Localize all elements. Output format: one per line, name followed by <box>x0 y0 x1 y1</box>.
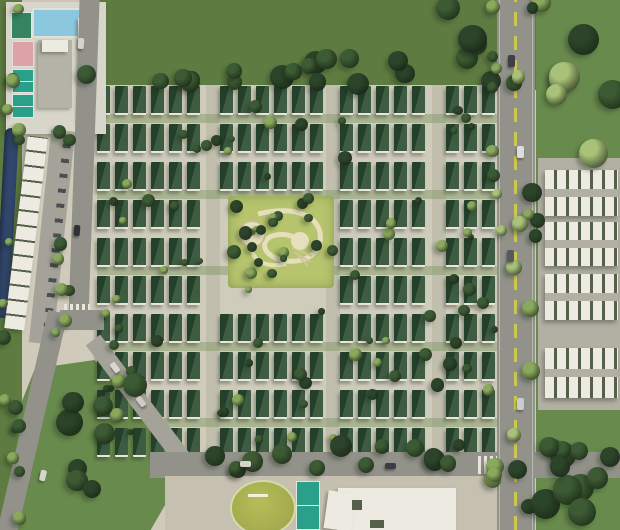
house <box>133 314 146 343</box>
house <box>358 276 371 305</box>
house <box>115 238 128 267</box>
tree <box>347 73 369 95</box>
house <box>358 162 371 191</box>
tree <box>568 24 599 55</box>
house <box>151 162 164 191</box>
car <box>517 146 524 158</box>
house <box>464 390 477 419</box>
house <box>187 314 200 343</box>
tree <box>600 447 620 467</box>
house <box>187 390 200 419</box>
tree <box>280 255 286 261</box>
row-house-block <box>545 170 618 216</box>
house <box>292 86 305 115</box>
sports-court-pink <box>12 41 34 67</box>
car <box>240 461 251 467</box>
tree <box>294 368 307 381</box>
house <box>292 162 305 191</box>
row-house-block <box>545 348 618 398</box>
house <box>340 314 353 343</box>
crosswalk <box>64 304 90 310</box>
house <box>446 238 459 267</box>
tree <box>179 130 188 139</box>
house <box>310 352 323 381</box>
house <box>464 86 477 115</box>
tree <box>205 446 224 465</box>
tree <box>491 63 502 74</box>
car <box>517 398 524 410</box>
tree <box>193 145 201 153</box>
tree <box>568 498 596 526</box>
house <box>115 86 128 115</box>
house <box>412 200 425 229</box>
house <box>151 352 164 381</box>
tree <box>93 396 113 416</box>
house <box>412 124 425 153</box>
tree <box>102 309 111 318</box>
tree <box>330 435 352 457</box>
masterplan-aerial-view <box>0 0 620 530</box>
house <box>310 314 323 343</box>
house <box>220 86 233 115</box>
house <box>97 200 110 229</box>
clubhouse-roof-section <box>42 40 68 52</box>
tree <box>267 269 276 278</box>
house <box>169 162 182 191</box>
tree <box>226 63 242 79</box>
house <box>394 314 407 343</box>
tree <box>5 238 13 246</box>
tree <box>115 324 123 332</box>
tree <box>52 328 60 336</box>
tree <box>239 226 253 240</box>
house <box>274 86 287 115</box>
tree <box>14 135 24 145</box>
south-tennis-court <box>296 481 320 530</box>
car <box>507 250 514 262</box>
tree <box>211 135 222 146</box>
tree <box>579 139 608 168</box>
house <box>482 352 495 381</box>
house <box>151 238 164 267</box>
tree <box>174 69 191 86</box>
tree <box>386 218 396 228</box>
house <box>169 352 182 381</box>
house <box>412 238 425 267</box>
car <box>74 225 81 236</box>
house <box>394 390 407 419</box>
tree <box>295 118 308 131</box>
lawn-mound <box>291 232 309 250</box>
tree <box>458 25 486 53</box>
house <box>340 200 353 229</box>
house <box>340 390 353 419</box>
house <box>446 200 459 229</box>
house <box>446 390 459 419</box>
house <box>358 200 371 229</box>
tree <box>338 151 352 165</box>
house <box>394 124 407 153</box>
house <box>133 428 146 457</box>
house <box>169 124 182 153</box>
tree <box>224 147 232 155</box>
house <box>256 390 269 419</box>
house <box>340 276 353 305</box>
tree <box>300 400 308 408</box>
house <box>187 200 200 229</box>
tree <box>309 73 327 91</box>
house <box>394 276 407 305</box>
house <box>446 162 459 191</box>
house <box>169 390 182 419</box>
house <box>274 162 287 191</box>
south-clubhouse-wing <box>323 490 356 530</box>
house <box>169 276 182 305</box>
house <box>340 162 353 191</box>
house <box>274 390 287 419</box>
house <box>412 276 425 305</box>
house <box>394 86 407 115</box>
court-net-line <box>297 505 319 506</box>
tree <box>54 237 67 250</box>
house <box>464 238 477 267</box>
house <box>310 124 323 153</box>
house <box>376 124 389 153</box>
tree <box>217 410 223 416</box>
house <box>310 390 323 419</box>
house <box>292 314 305 343</box>
house <box>133 238 146 267</box>
tree <box>2 104 13 115</box>
tree <box>436 0 460 20</box>
tree <box>287 432 297 442</box>
car <box>78 38 85 49</box>
building-courtyard <box>370 520 384 528</box>
tree <box>463 228 472 237</box>
tree <box>59 314 72 327</box>
tree <box>253 338 263 348</box>
house <box>376 86 389 115</box>
tree <box>483 384 495 396</box>
tree <box>77 65 96 84</box>
tree <box>122 179 132 189</box>
house <box>376 238 389 267</box>
house <box>133 276 146 305</box>
house <box>169 238 182 267</box>
house <box>169 314 182 343</box>
tree <box>62 392 84 414</box>
house <box>340 238 353 267</box>
tree <box>245 359 252 366</box>
tree <box>201 140 212 151</box>
tree <box>55 283 68 296</box>
tree <box>522 362 540 380</box>
house <box>358 124 371 153</box>
tree <box>197 258 203 264</box>
house <box>394 162 407 191</box>
tree <box>527 2 539 14</box>
tree <box>424 310 436 322</box>
tree <box>318 308 325 315</box>
house <box>97 238 110 267</box>
house <box>187 352 200 381</box>
tree <box>467 201 477 211</box>
house <box>133 162 146 191</box>
tree <box>142 194 155 207</box>
tree <box>181 259 187 265</box>
house <box>376 162 389 191</box>
tree <box>486 145 498 157</box>
tree <box>12 419 26 433</box>
building-courtyard <box>352 500 362 510</box>
house <box>238 162 251 191</box>
tree <box>550 456 571 477</box>
tree <box>13 511 26 524</box>
tree <box>56 409 83 436</box>
house <box>412 390 425 419</box>
tree <box>268 218 278 228</box>
tree <box>227 245 241 259</box>
car <box>508 55 515 67</box>
tree <box>522 183 542 203</box>
tree <box>0 299 8 308</box>
tree <box>431 378 444 391</box>
house <box>187 276 200 305</box>
tree <box>340 49 358 67</box>
house <box>220 314 233 343</box>
tennis-court <box>12 94 34 118</box>
house <box>97 276 110 305</box>
tree <box>598 80 620 109</box>
tree <box>285 63 301 79</box>
house <box>151 276 164 305</box>
tree <box>539 437 559 457</box>
house <box>394 238 407 267</box>
tree <box>13 4 23 14</box>
house <box>220 352 233 381</box>
tree <box>389 370 401 382</box>
house <box>151 86 164 115</box>
tree <box>316 49 337 70</box>
house <box>274 314 287 343</box>
oval-lawn <box>230 480 296 530</box>
house <box>133 86 146 115</box>
tree <box>487 82 498 93</box>
house <box>274 124 287 153</box>
tree <box>477 297 489 309</box>
house <box>187 162 200 191</box>
house <box>256 352 269 381</box>
house <box>115 428 128 457</box>
house <box>482 238 495 267</box>
road-edge-line <box>532 0 533 530</box>
tree <box>14 466 25 477</box>
tree <box>152 73 168 89</box>
house <box>376 390 389 419</box>
tree <box>491 326 498 333</box>
house <box>482 200 495 229</box>
tree <box>53 125 67 139</box>
tree <box>6 74 20 88</box>
tree <box>367 389 377 399</box>
tree <box>349 348 362 361</box>
tree <box>311 240 322 251</box>
house <box>97 162 110 191</box>
house <box>358 238 371 267</box>
house <box>115 124 128 153</box>
tree <box>7 452 18 463</box>
tree <box>338 117 346 125</box>
house <box>238 86 251 115</box>
house <box>169 86 182 115</box>
tree <box>119 217 127 225</box>
tree <box>508 460 527 479</box>
court-net-line <box>13 106 33 107</box>
tree <box>487 467 502 482</box>
tree <box>112 295 120 303</box>
tree <box>512 70 526 84</box>
tree <box>529 229 543 243</box>
car <box>385 463 396 469</box>
tree <box>458 305 469 316</box>
sports-court-green <box>11 12 32 39</box>
house <box>412 314 425 343</box>
tree <box>512 216 528 232</box>
house <box>238 314 251 343</box>
tree <box>249 100 262 113</box>
tree <box>309 460 324 475</box>
house <box>133 124 146 153</box>
house <box>464 162 477 191</box>
house <box>376 276 389 305</box>
house <box>274 352 287 381</box>
row-house-block <box>545 222 618 266</box>
tree <box>468 123 475 130</box>
tree <box>440 455 456 471</box>
house <box>340 124 353 153</box>
tree <box>450 337 462 349</box>
swimming-pool <box>32 8 82 38</box>
house <box>238 124 251 153</box>
house <box>412 162 425 191</box>
tree <box>53 253 64 264</box>
house <box>310 162 323 191</box>
house <box>220 162 233 191</box>
tree <box>170 201 180 211</box>
house <box>412 86 425 115</box>
house <box>151 124 164 153</box>
tree <box>127 429 133 435</box>
tree <box>304 214 313 223</box>
oval-marking <box>248 494 268 497</box>
tree <box>350 270 360 280</box>
tree <box>366 337 373 344</box>
house <box>464 314 477 343</box>
tree <box>406 439 424 457</box>
row-house-block <box>545 274 618 320</box>
tree <box>375 439 389 453</box>
tree <box>303 193 314 204</box>
